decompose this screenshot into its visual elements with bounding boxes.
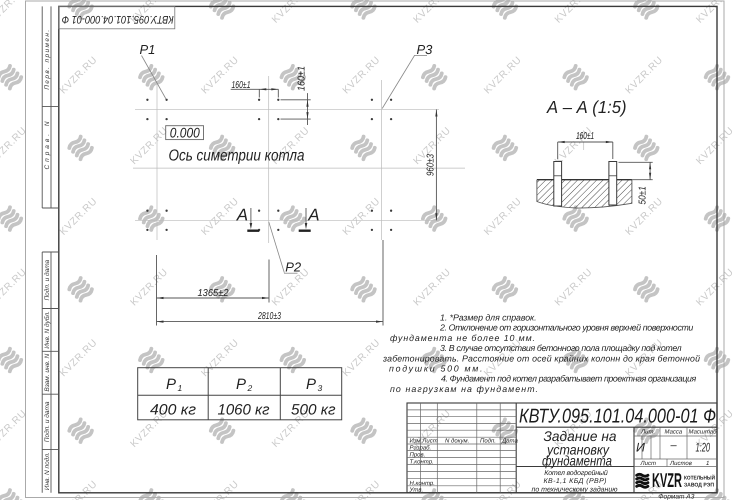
svg-text:Подп. и дата: Подп. и дата [44, 401, 51, 442]
svg-text:Лит.: Лит. [640, 429, 655, 436]
svg-text:160±1: 160±1 [297, 66, 308, 91]
svg-text:4. Фундамент под котел разраба: 4. Фундамент под котел разрабатывает про… [441, 374, 696, 384]
svg-text:KVZR.RU: KVZR.RU [0, 408, 29, 450]
svg-text:Р: Р [236, 376, 246, 393]
svg-text:1:20: 1:20 [696, 441, 711, 455]
svg-text:–: – [670, 440, 678, 452]
svg-text:Котел водогрейный: Котел водогрейный [544, 469, 608, 477]
svg-text:Т.контр.: Т.контр. [410, 458, 434, 465]
svg-text:3: 3 [318, 383, 323, 393]
svg-text:1: 1 [178, 383, 183, 393]
svg-text:КВТУ.095.101.04.000-01 Ф: КВТУ.095.101.04.000-01 Ф [62, 13, 174, 25]
svg-text:KVZR.RU: KVZR.RU [341, 337, 383, 379]
svg-text:KVZR.RU: KVZR.RU [694, 267, 736, 309]
svg-text:KVZR.RU: KVZR.RU [482, 55, 524, 97]
svg-text:Р: Р [306, 376, 316, 393]
svg-text:3. В случае отсутствия бетонно: 3. В случае отсутствия бетонного пола пл… [440, 343, 682, 353]
svg-text:Справ. N: Справ. N [44, 121, 51, 169]
svg-text:50±1: 50±1 [638, 186, 649, 204]
svg-text:KVZR.RU: KVZR.RU [58, 337, 100, 379]
svg-text:Взам. инв. N: Взам. инв. N [44, 353, 51, 391]
svg-text:Ось симетрии котла: Ось симетрии котла [169, 147, 305, 164]
svg-text:P3: P3 [417, 42, 434, 57]
svg-text:2: 2 [247, 383, 253, 393]
svg-text:КОТЕЛЬНЫЙ: КОТЕЛЬНЫЙ [684, 475, 715, 482]
svg-text:KVZR.RU: KVZR.RU [0, 0, 29, 26]
svg-text:KVZR.RU: KVZR.RU [341, 196, 383, 238]
svg-text:KVZR.RU: KVZR.RU [58, 55, 100, 97]
svg-text:400 кг: 400 кг [150, 402, 197, 419]
svg-text:2810±3: 2810±3 [257, 311, 281, 322]
svg-text:500 кг: 500 кг [291, 402, 336, 419]
svg-text:KVZR.RU: KVZR.RU [199, 337, 241, 379]
svg-text:Н.контр.: Н.контр. [410, 480, 435, 487]
svg-text:Подп.: Подп. [480, 437, 496, 444]
svg-text:160±1: 160±1 [576, 131, 594, 142]
svg-text:A: A [236, 205, 248, 224]
svg-text:Масса: Масса [665, 429, 683, 436]
svg-text:Формат А3: Формат А3 [658, 494, 694, 500]
svg-text:KVZR.RU: KVZR.RU [694, 0, 736, 26]
svg-text:по техническому заданию: по техническому заданию [532, 486, 619, 494]
svg-text:по нагрузкам на фундамент.: по нагрузкам на фундамент. [390, 384, 538, 394]
svg-text:KVZR.RU: KVZR.RU [553, 267, 595, 309]
svg-text:KVZR.RU: KVZR.RU [0, 125, 29, 167]
svg-text:P1: P1 [140, 42, 156, 57]
svg-text:КВ-1,1 КБД (РВР): КВ-1,1 КБД (РВР) [544, 477, 607, 485]
svg-text:KVZR.RU: KVZR.RU [624, 55, 666, 97]
svg-text:P2: P2 [285, 260, 302, 275]
svg-text:А – А (1:5): А – А (1:5) [546, 97, 626, 117]
svg-text:KVZR.RU: KVZR.RU [58, 196, 100, 238]
svg-text:фундамента не более 10 мм.: фундамента не более 10 мм. [390, 333, 535, 343]
svg-text:KVZR.RU: KVZR.RU [270, 0, 312, 26]
svg-text:KVZR.RU: KVZR.RU [553, 0, 595, 26]
svg-text:1365±2: 1365±2 [198, 288, 229, 299]
svg-text:KVZR.RU: KVZR.RU [341, 479, 383, 500]
svg-text:Лист: Лист [640, 460, 656, 467]
svg-text:фундамента: фундамента [542, 453, 612, 469]
svg-text:KVZR.RU: KVZR.RU [412, 267, 454, 309]
svg-text:KVZR.RU: KVZR.RU [129, 267, 171, 309]
svg-text:Изм.Лист: Изм.Лист [410, 437, 438, 444]
svg-text:2. Отклонение от горизонтально: 2. Отклонение от горизонтального уровня … [439, 323, 693, 333]
svg-text:ЗАВОД РЭП: ЗАВОД РЭП [684, 482, 714, 488]
svg-text:Дата: Дата [501, 437, 518, 444]
svg-text:КВТУ.095.101.04.000-01 Ф: КВТУ.095.101.04.000-01 Ф [519, 405, 716, 427]
svg-text:960±3: 960±3 [426, 154, 437, 176]
svg-text:KVZR.RU: KVZR.RU [341, 55, 383, 97]
svg-text:Листов: Листов [669, 460, 692, 467]
svg-text:Инв. N дубл.: Инв. N дубл. [44, 311, 51, 349]
svg-text:KVZR: KVZR [652, 470, 682, 492]
svg-text:И: И [636, 441, 645, 455]
svg-text:KVZR.RU: KVZR.RU [199, 196, 241, 238]
svg-text:Инв. N подл.: Инв. N подл. [44, 452, 51, 490]
svg-text:KVZR.RU: KVZR.RU [58, 479, 100, 500]
svg-text:KVZR.RU: KVZR.RU [412, 0, 454, 26]
svg-text:Р: Р [166, 376, 176, 393]
svg-text:Перв. примен.: Перв. примен. [44, 30, 51, 90]
svg-text:A: A [307, 205, 319, 224]
svg-text:Разраб.: Разраб. [410, 445, 432, 452]
svg-text:забетонировать. Расстояние от: забетонировать. Расстояние от осей крайн… [382, 353, 700, 363]
svg-text:Пров.: Пров. [410, 451, 426, 458]
svg-text:N докум.: N докум. [445, 437, 469, 444]
svg-text:KVZR.RU: KVZR.RU [482, 196, 524, 238]
svg-text:KVZR.RU: KVZR.RU [129, 125, 171, 167]
svg-text:подушки 500 мм.: подушки 500 мм. [389, 364, 483, 374]
svg-text:KVZR.RU: KVZR.RU [199, 479, 241, 500]
svg-text:0.000: 0.000 [170, 125, 200, 141]
svg-text:KVZR.RU: KVZR.RU [0, 267, 29, 309]
svg-text:Утв.: Утв. [409, 487, 424, 494]
svg-text:KVZR.RU: KVZR.RU [694, 125, 736, 167]
svg-text:1. *Размер для справок.: 1. *Размер для справок. [440, 313, 537, 323]
svg-text:1060 кг: 1060 кг [218, 402, 271, 419]
svg-text:1: 1 [706, 460, 709, 467]
svg-text:Масштаб: Масштаб [689, 429, 718, 436]
svg-text:Подп. и дата: Подп. и дата [44, 259, 51, 300]
svg-text:KVZR.RU: KVZR.RU [482, 479, 524, 500]
